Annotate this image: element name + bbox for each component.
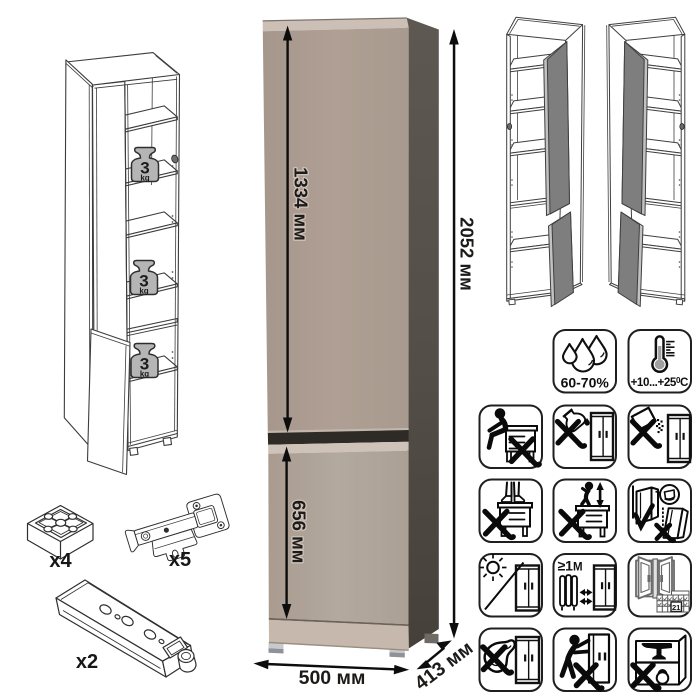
svg-text:x5: x5 <box>169 549 191 571</box>
svg-text:1334 мм: 1334 мм <box>291 167 312 241</box>
svg-text:60-70%: 60-70% <box>561 375 610 391</box>
svg-text:x2: x2 <box>76 651 98 673</box>
svg-text:+10...+250C: +10...+250C <box>631 376 689 389</box>
svg-text:kg: kg <box>140 369 149 378</box>
svg-text:21: 21 <box>672 603 680 612</box>
svg-text:kg: kg <box>140 173 149 182</box>
svg-text:2052 мм: 2052 мм <box>457 217 478 291</box>
svg-text:500 мм: 500 мм <box>299 667 366 689</box>
svg-text:x4: x4 <box>49 550 72 572</box>
svg-text:kg: kg <box>139 286 148 295</box>
svg-text:656 мм: 656 мм <box>289 500 310 563</box>
